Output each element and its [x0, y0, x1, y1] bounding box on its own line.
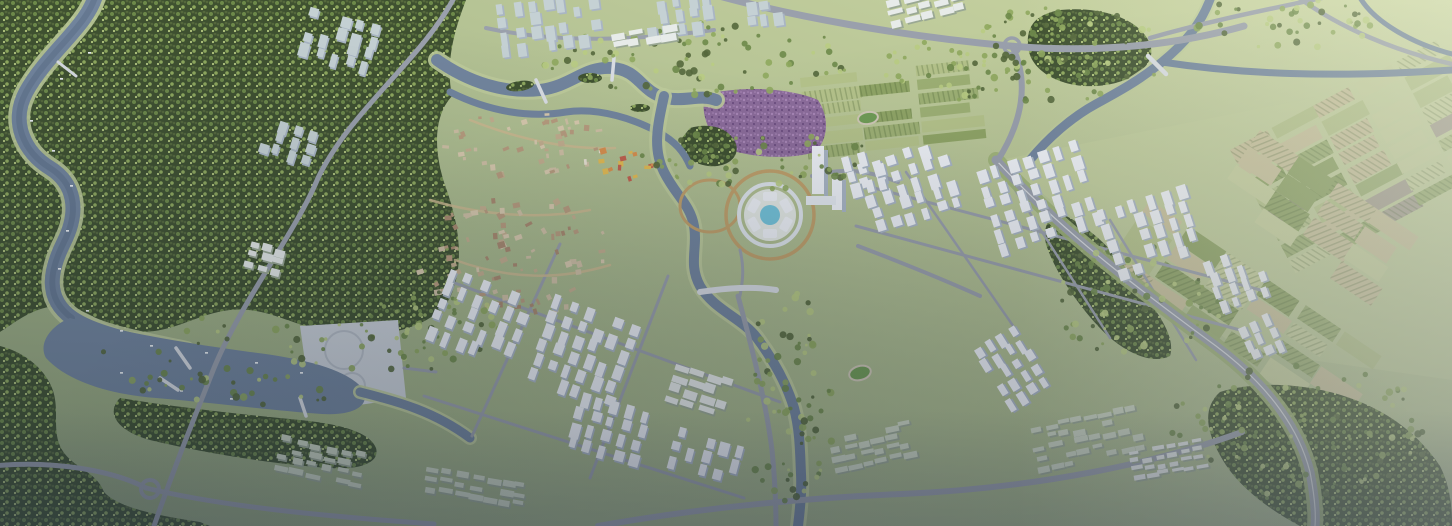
- aerial-masterplan-image: [0, 0, 1452, 526]
- masterplan-svg: [0, 0, 1452, 526]
- bottom-haze: [0, 0, 1452, 526]
